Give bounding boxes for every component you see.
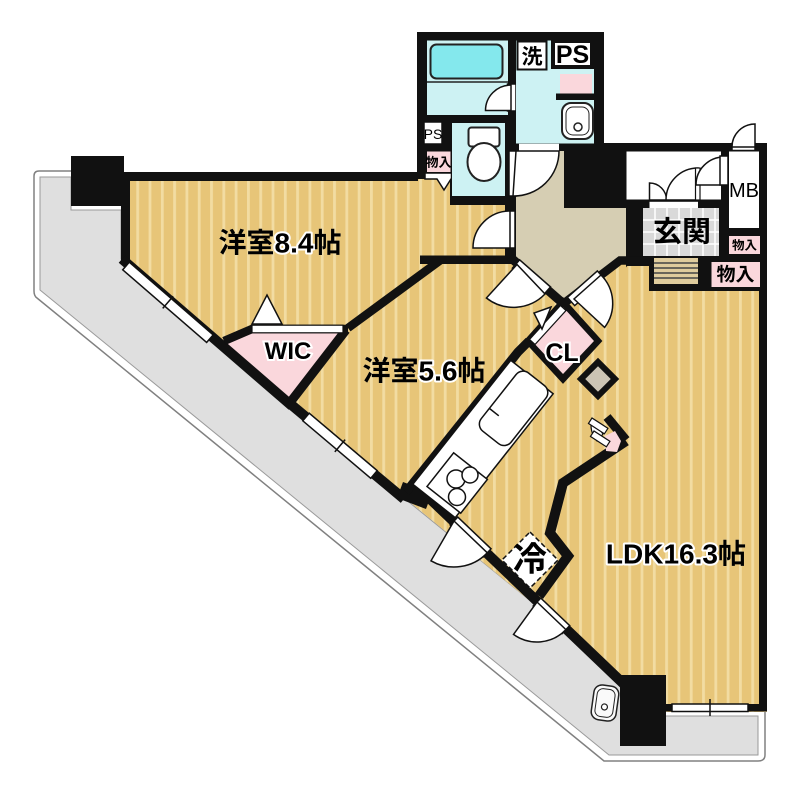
svg-text:5.6: 5.6 <box>419 356 458 387</box>
svg-text:WIC: WIC <box>265 338 312 365</box>
svg-text:PS: PS <box>424 126 443 142</box>
svg-text:8.4: 8.4 <box>275 228 314 259</box>
svg-text:PS: PS <box>556 41 589 69</box>
svg-text:LDK16.3: LDK16.3 <box>606 539 718 570</box>
svg-text:MB: MB <box>729 180 759 202</box>
svg-text:CL: CL <box>545 339 578 367</box>
